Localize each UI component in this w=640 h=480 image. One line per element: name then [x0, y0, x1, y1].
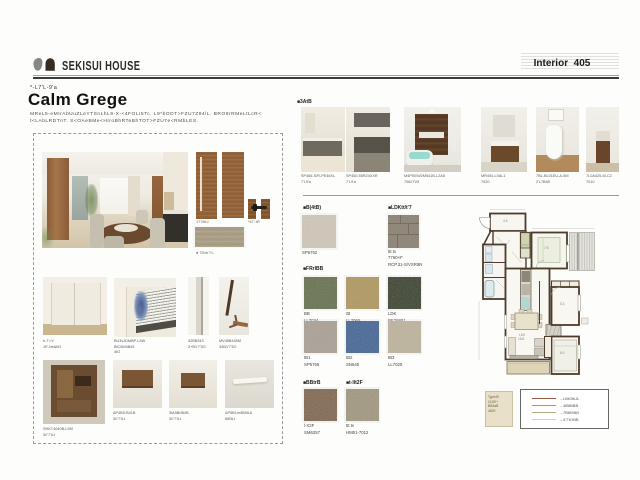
svg-text:7.5: 7.5 [544, 246, 549, 250]
svg-text:16.8: 16.8 [518, 337, 524, 341]
svg-text:5.3: 5.3 [560, 302, 565, 306]
svg-text:4.5: 4.5 [503, 219, 508, 223]
svg-text:6.0: 6.0 [560, 351, 565, 355]
